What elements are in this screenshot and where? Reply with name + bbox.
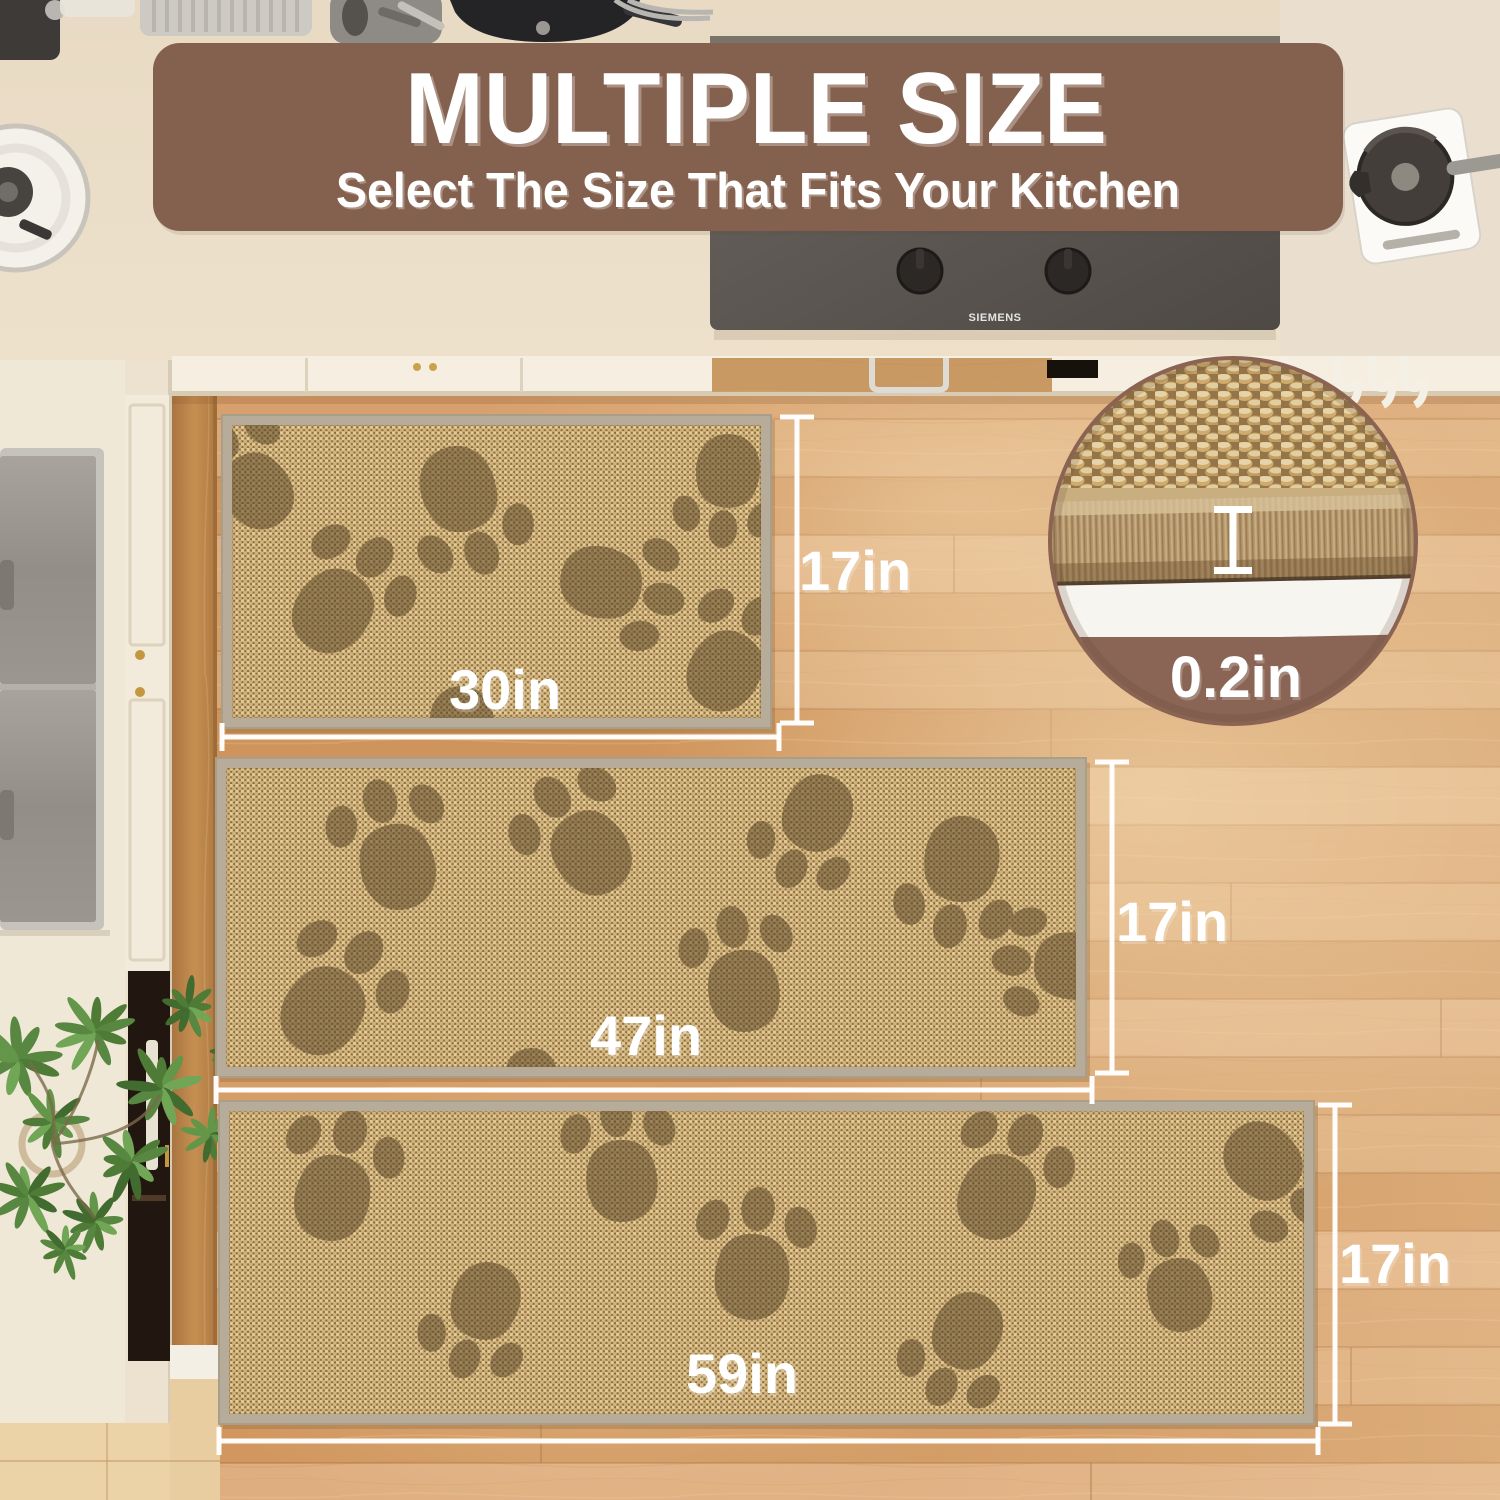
svg-text:Select The Size That Fits Your: Select The Size That Fits Your Kitchen <box>336 164 1180 218</box>
svg-text:0.2in: 0.2in <box>1170 645 1302 710</box>
svg-text:17in: 17in <box>1339 1232 1451 1295</box>
svg-text:MULTIPLE SIZE: MULTIPLE SIZE <box>405 53 1107 165</box>
svg-text:17in: 17in <box>1116 890 1228 953</box>
svg-text:47in: 47in <box>590 1004 702 1067</box>
svg-text:30in: 30in <box>449 658 561 721</box>
svg-text:59in: 59in <box>686 1342 798 1405</box>
svg-text:17in: 17in <box>799 539 911 602</box>
svg-text:SIEMENS: SIEMENS <box>968 312 1021 324</box>
